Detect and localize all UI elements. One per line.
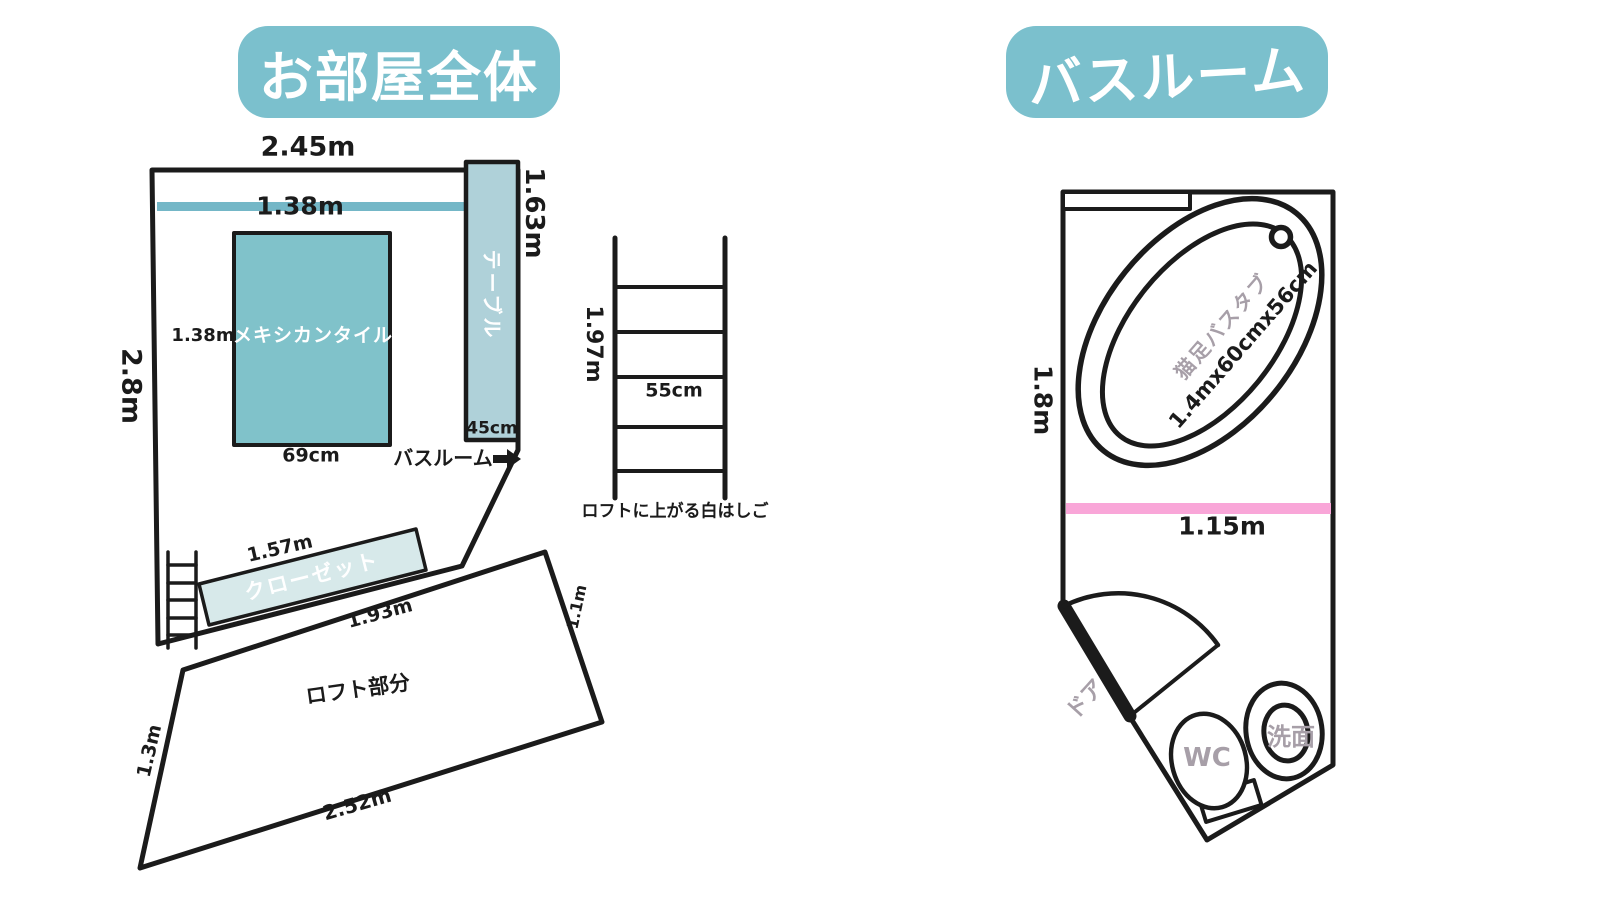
bathroom-height-label: 1.8m: [1031, 365, 1056, 435]
tile-label: メキシカンタイル: [233, 327, 393, 346]
tile-width-label: 69cm: [282, 447, 340, 466]
tile-height-label: 1.38m: [171, 327, 234, 345]
floor-plan-canvas: お部屋全体 バスルーム 2.45m 1.38m 2.8m メキシカンタイル 1.…: [0, 0, 1600, 900]
ladder-caption: ロフトに上がる白はしご: [582, 504, 769, 521]
bathroom-shelf: [1063, 192, 1190, 209]
bathroom-title-badge: バスルーム: [1006, 26, 1328, 118]
sink-label: 洗面: [1267, 725, 1315, 749]
table-length-label: 1.63m: [521, 167, 547, 258]
table-depth-label: 45cm: [466, 421, 517, 438]
bathroom-width-label: 1.15m: [1178, 514, 1266, 539]
room-title: お部屋全体: [259, 33, 539, 112]
room-top-width-label: 2.45m: [261, 134, 356, 161]
bathroom-pointer-label: バスルーム: [393, 448, 492, 468]
floor-plan-drawing: [0, 0, 1600, 900]
ladder-width-label: 55cm: [645, 382, 703, 401]
bathroom-title: バスルーム: [1026, 25, 1308, 118]
room-ladder-icon: [168, 552, 196, 648]
room-title-badge: お部屋全体: [238, 26, 560, 118]
ladder-height-label: 1.97m: [582, 305, 604, 382]
loft-ladder-drawing: [615, 238, 725, 498]
toilet-label: WC: [1183, 745, 1231, 771]
table-label: テーブル: [482, 250, 502, 341]
curtain-rail-length-label: 1.38m: [256, 194, 344, 219]
room-left-height-label: 2.8m: [118, 348, 145, 424]
